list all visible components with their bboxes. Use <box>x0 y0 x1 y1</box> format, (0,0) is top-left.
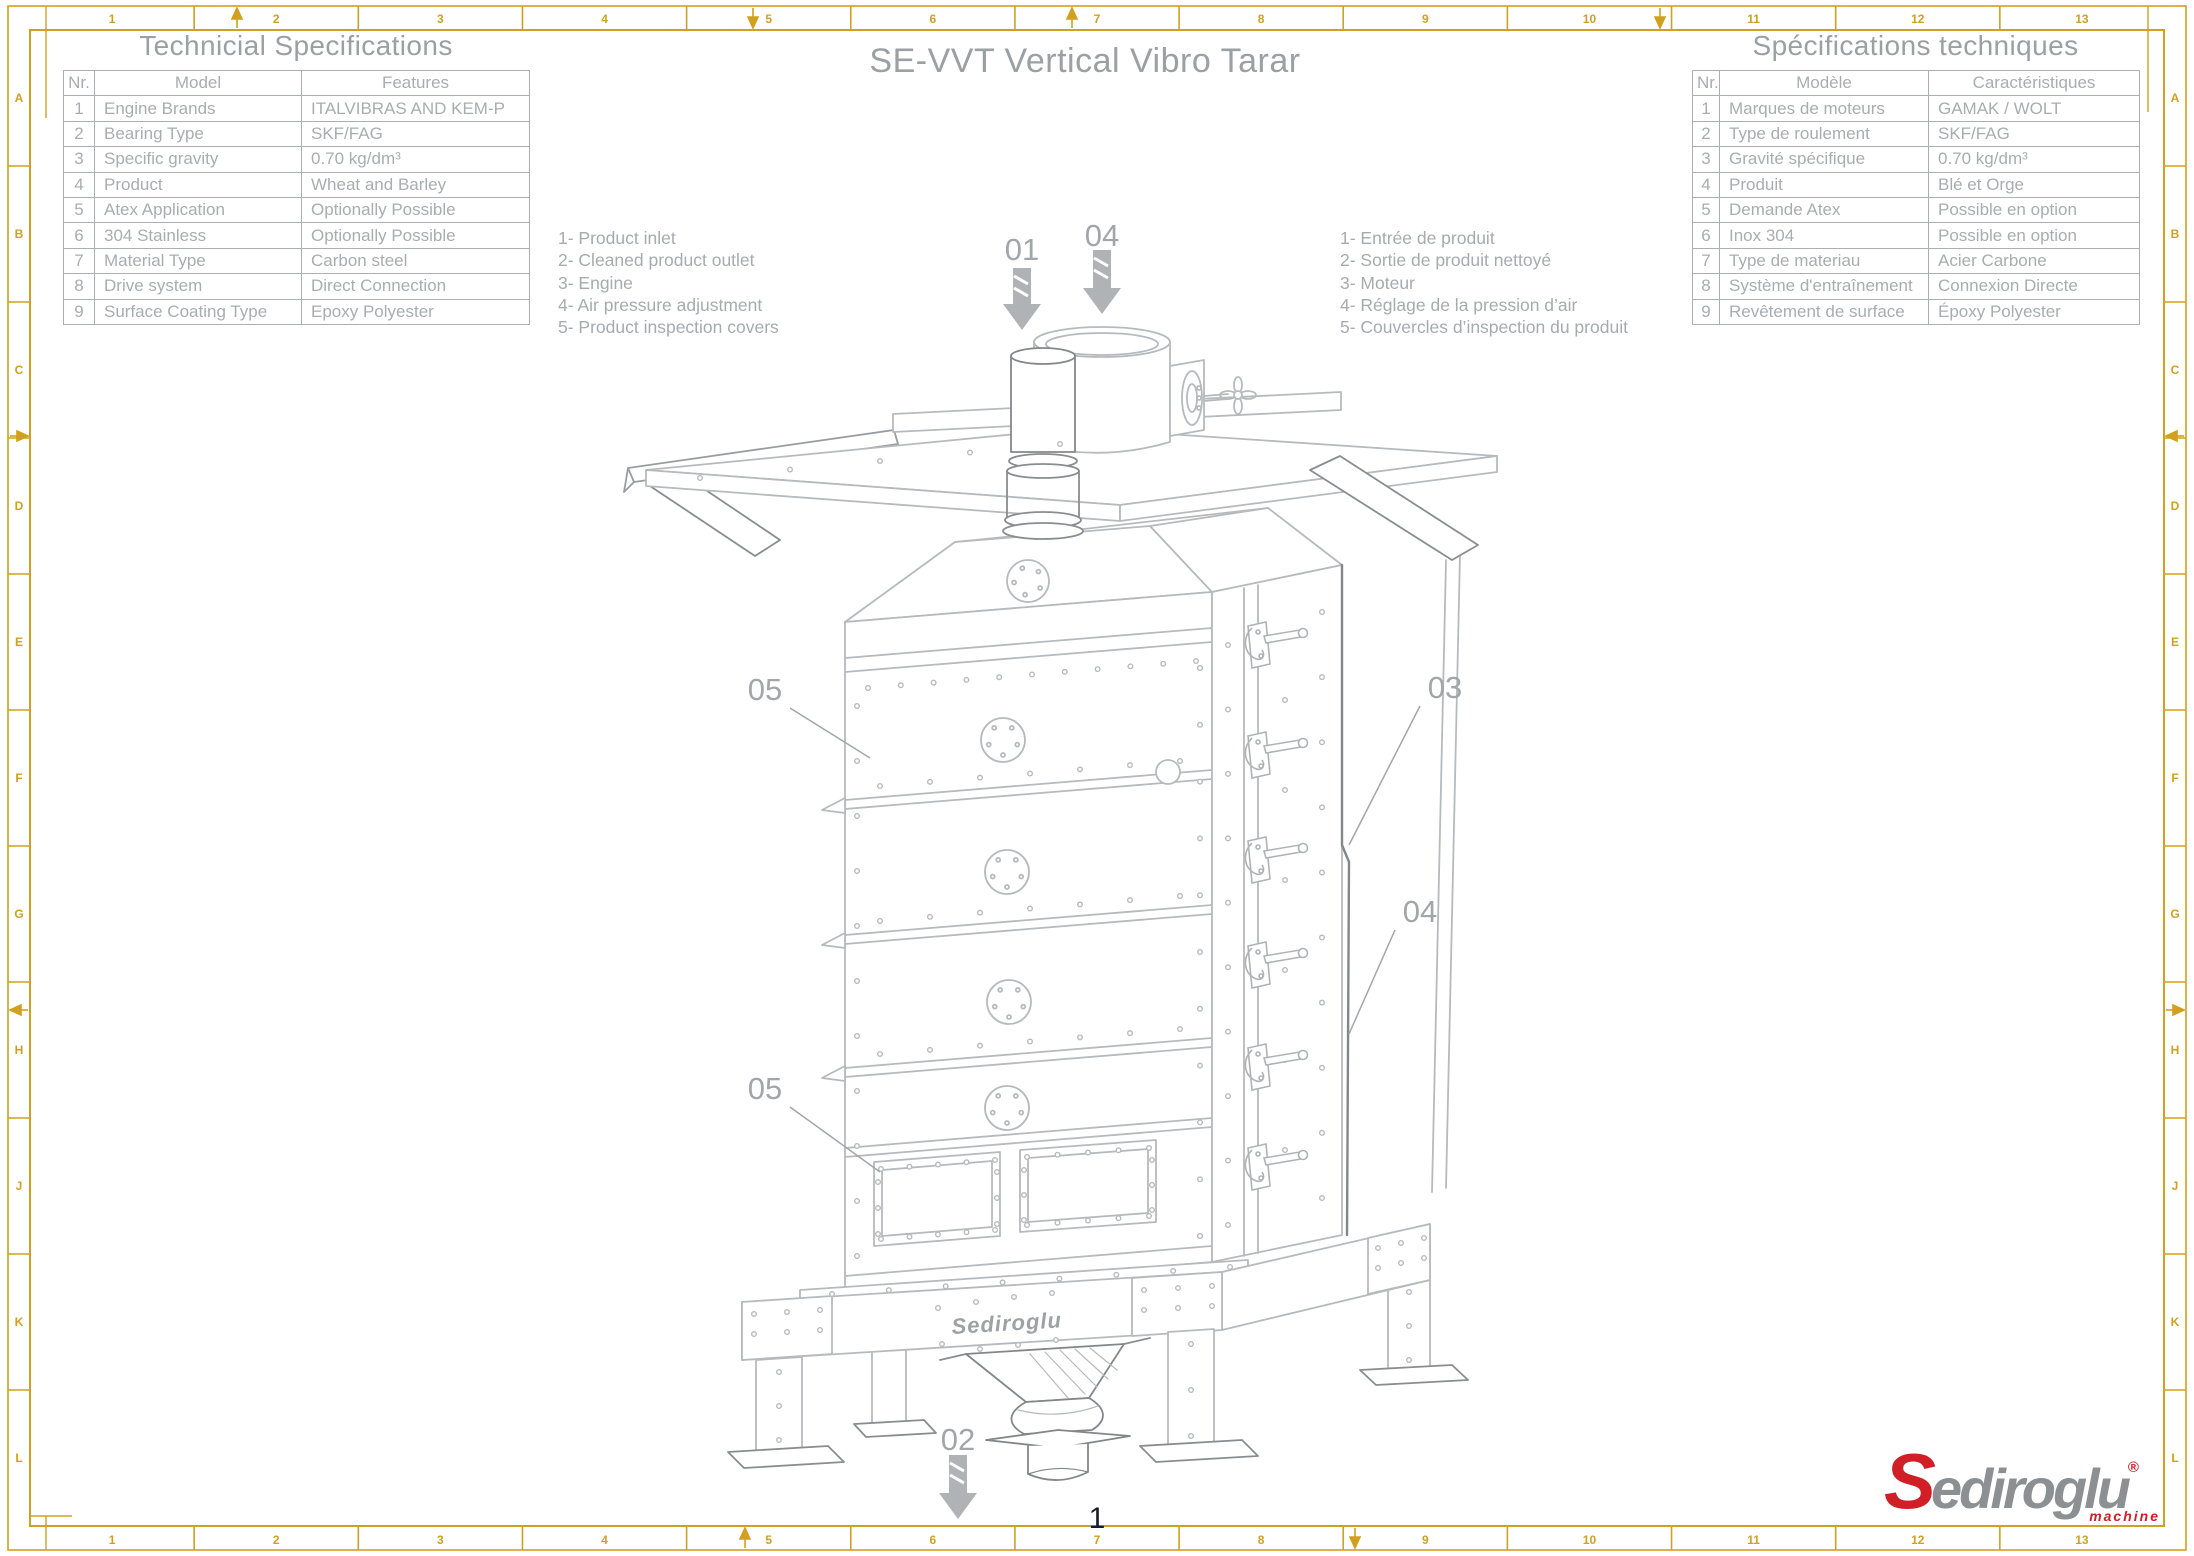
table-cell: Wheat and Barley <box>302 172 530 197</box>
legend-item: 4- Air pressure adjustment <box>558 294 779 316</box>
table-cell: Optionally Possible <box>302 223 530 248</box>
table-cell: Système d'entraînement <box>1720 274 1929 299</box>
table-cell: Possible en option <box>1929 197 2140 222</box>
table-row: 2Bearing TypeSKF/FAG <box>64 121 530 146</box>
table-header-cell: Nr. <box>64 71 95 96</box>
table-cell: 0.70 kg/dm³ <box>302 147 530 172</box>
table-cell: Type de roulement <box>1720 121 1929 146</box>
legend-item: 2- Sortie de produit nettoyé <box>1340 249 1628 271</box>
table-row: 7Type de materiauAcier Carbone <box>1693 248 2140 273</box>
callout-engine: 03 <box>1428 670 1462 705</box>
table-row: 3Specific gravity0.70 kg/dm³ <box>64 147 530 172</box>
table-header-row: Nr.ModèleCaractéristiques <box>1693 71 2140 96</box>
table-row: 6304 StainlessOptionally Possible <box>64 223 530 248</box>
spec-table-en-title: Technicial Specifications <box>63 30 529 62</box>
spec-table-en: Technicial Specifications Nr.ModelFeatur… <box>63 30 529 325</box>
table-row: 5Demande AtexPossible en option <box>1693 197 2140 222</box>
legend-item: 2- Cleaned product outlet <box>558 249 779 271</box>
table-row: 3Gravité spécifique0.70 kg/dm³ <box>1693 147 2140 172</box>
table-row: 1Marques de moteursGAMAK / WOLT <box>1693 96 2140 121</box>
table-cell: Specific gravity <box>95 147 302 172</box>
table-cell: Material Type <box>95 248 302 273</box>
table-cell: 9 <box>64 299 95 324</box>
table-cell: Carbon steel <box>302 248 530 273</box>
table-cell: Atex Application <box>95 197 302 222</box>
table-cell: Blé et Orge <box>1929 172 2140 197</box>
table-cell: 4 <box>64 172 95 197</box>
table-row: 6Inox 304Possible en option <box>1693 223 2140 248</box>
table-cell: Direct Connection <box>302 274 530 299</box>
table-cell: 6 <box>1693 223 1720 248</box>
table-header-row: Nr.ModelFeatures <box>64 71 530 96</box>
table-cell: 4 <box>1693 172 1720 197</box>
table-header-cell: Modèle <box>1720 71 1929 96</box>
table-cell: 7 <box>1693 248 1720 273</box>
table-cell: SKF/FAG <box>302 121 530 146</box>
table-row: 7Material TypeCarbon steel <box>64 248 530 273</box>
registered-mark: ® <box>2128 1459 2139 1476</box>
logo-initial: S <box>1884 1437 1931 1525</box>
legend-item: 5- Couvercles d’inspection du produit <box>1340 316 1628 338</box>
table-cell: 8 <box>1693 274 1720 299</box>
table-cell: 1 <box>1693 96 1720 121</box>
table-cell: ITALVIBRAS AND KEM-P <box>302 96 530 121</box>
table-cell: Demande Atex <box>1720 197 1929 222</box>
table-cell: 5 <box>64 197 95 222</box>
page-number: 1 <box>1089 1502 1106 1535</box>
legend-item: 1- Entrée de produit <box>1340 227 1628 249</box>
table-cell: 6 <box>64 223 95 248</box>
sheet-title: SE-VVT Vertical Vibro Tarar <box>720 42 1450 81</box>
table-cell: Époxy Polyester <box>1929 299 2140 324</box>
table-cell: Epoxy Polyester <box>302 299 530 324</box>
table-row: 9Surface Coating TypeEpoxy Polyester <box>64 299 530 324</box>
table-cell: Revêtement de surface <box>1720 299 1929 324</box>
table-cell: SKF/FAG <box>1929 121 2140 146</box>
drawing-sheet: 1122334455667788991010111112121313AABBCC… <box>0 0 2194 1556</box>
table-cell: 8 <box>64 274 95 299</box>
legend-en: 1- Product inlet2- Cleaned product outle… <box>558 227 779 338</box>
legend-item: 3- Engine <box>558 272 779 294</box>
legend-item: 3- Moteur <box>1340 272 1628 294</box>
callout-inspection-covers-upper: 05 <box>748 672 782 707</box>
table-header-cell: Model <box>95 71 302 96</box>
callout-cleaned-product-outlet: 02 <box>941 1422 975 1457</box>
legend-item: 4- Réglage de la pression d’air <box>1340 294 1628 316</box>
table-cell: Engine Brands <box>95 96 302 121</box>
spec-table-fr-title: Spécifications techniques <box>1692 30 2139 62</box>
table-cell: Acier Carbone <box>1929 248 2140 273</box>
table-cell: 1 <box>64 96 95 121</box>
table-cell: Optionally Possible <box>302 197 530 222</box>
table-cell: 2 <box>64 121 95 146</box>
table-cell: 5 <box>1693 197 1720 222</box>
table-cell: 7 <box>64 248 95 273</box>
table-cell: Inox 304 <box>1720 223 1929 248</box>
callout-air-pressure-side: 04 <box>1403 894 1437 929</box>
table-header-cell: Nr. <box>1693 71 1720 96</box>
table-cell: Drive system <box>95 274 302 299</box>
table-cell: GAMAK / WOLT <box>1929 96 2140 121</box>
table-row: 9Revêtement de surfaceÉpoxy Polyester <box>1693 299 2140 324</box>
callout-air-pressure-top: 04 <box>1085 218 1119 253</box>
table-row: 4ProduitBlé et Orge <box>1693 172 2140 197</box>
table-cell: 9 <box>1693 299 1720 324</box>
table-cell: Marques de moteurs <box>1720 96 1929 121</box>
table-row: 8Système d'entraînementConnexion Directe <box>1693 274 2140 299</box>
table-cell: Produit <box>1720 172 1929 197</box>
table-cell: Gravité spécifique <box>1720 147 1929 172</box>
legend-item: 1- Product inlet <box>558 227 779 249</box>
table-cell: 0.70 kg/dm³ <box>1929 147 2140 172</box>
table-cell: Connexion Directe <box>1929 274 2140 299</box>
callout-product-inlet: 01 <box>1005 232 1039 267</box>
table-row: 5Atex ApplicationOptionally Possible <box>64 197 530 222</box>
company-logo: Sediroglu® machine <box>1884 1442 2174 1523</box>
spec-table-fr: Spécifications techniques Nr.ModèleCarac… <box>1692 30 2139 325</box>
table-row: 1Engine BrandsITALVIBRAS AND KEM-P <box>64 96 530 121</box>
table-row: 8Drive systemDirect Connection <box>64 274 530 299</box>
table-cell: 304 Stainless <box>95 223 302 248</box>
table-cell: Bearing Type <box>95 121 302 146</box>
legend-fr: 1- Entrée de produit2- Sortie de produit… <box>1340 227 1628 338</box>
table-cell: Product <box>95 172 302 197</box>
table-cell: 2 <box>1693 121 1720 146</box>
table-row: 4ProductWheat and Barley <box>64 172 530 197</box>
callout-inspection-covers-lower: 05 <box>748 1071 782 1106</box>
table-cell: 3 <box>64 147 95 172</box>
table-cell: Type de materiau <box>1720 248 1929 273</box>
legend-item: 5- Product inspection covers <box>558 316 779 338</box>
table-row: 2Type de roulementSKF/FAG <box>1693 121 2140 146</box>
table-cell: 3 <box>1693 147 1720 172</box>
table-cell: Possible en option <box>1929 223 2140 248</box>
table-header-cell: Caractéristiques <box>1929 71 2140 96</box>
table-cell: Surface Coating Type <box>95 299 302 324</box>
table-header-cell: Features <box>302 71 530 96</box>
